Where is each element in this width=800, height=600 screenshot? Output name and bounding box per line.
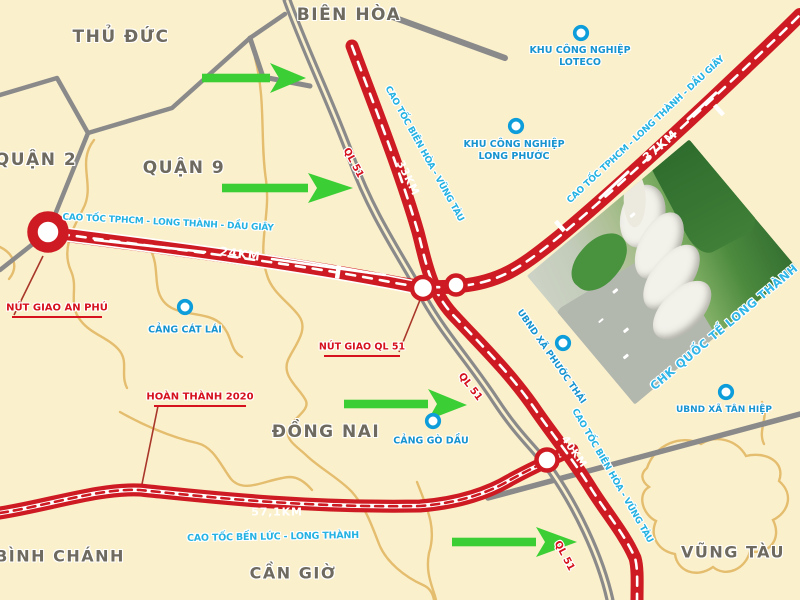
region-label-thu-duc: THỦ ĐỨC [73, 27, 170, 47]
route-map: THỦ ĐỨC BIÊN HÒA QUẬN 2 QUẬN 9 ĐỒNG NAI … [0, 0, 800, 600]
poi-marker-icon [720, 386, 733, 399]
green-arrow-icon [344, 389, 467, 420]
ql51-junction-circle [412, 277, 434, 299]
region-label-vung-tau: VŨNG TÀU [681, 543, 785, 562]
region-label-bien-hoa: BIÊN HÒA [297, 5, 401, 25]
poi-marker-icon [179, 301, 192, 314]
junction-label-ql51: NÚT GIAO QL 51 [319, 342, 405, 353]
poi-label-kcn-long-phuoc: KHU CÔNG NGHIỆP LONG PHƯỚC [463, 139, 564, 163]
expressway-tphcm-long-thanh-dau-giay [60, 15, 800, 287]
poi-marker-icon [427, 415, 440, 428]
bien-hoa-road [390, 16, 505, 58]
label-underline [12, 316, 102, 318]
bridge-tick [713, 104, 725, 117]
poi-label-ubnd-tan-hiep: UBND XÃ TÂN HIỆP [676, 405, 772, 415]
poi-label-line: LONG PHƯỚC [463, 151, 564, 163]
poi-label-cang-cat-lai: CẢNG CÁT LÁI [148, 325, 222, 336]
expressway-center-dashes [0, 450, 572, 513]
junction-circle [537, 450, 558, 471]
poi-label-kcn-loteco: KHU CÔNG NGHIỆP LOTECO [529, 45, 630, 69]
label-underline [324, 355, 400, 357]
region-label-quan-2: QUẬN 2 [0, 150, 77, 170]
note-label-hoan-thanh-2020: HOÀN THÀNH 2020 [146, 392, 253, 403]
junction-label-an-phu: NÚT GIAO AN PHÚ [6, 303, 108, 314]
expressway-bien-hoa-vung-tau [352, 46, 637, 600]
poi-marker-icon [557, 337, 570, 350]
poi-label-cang-go-dau: CẢNG GÒ DẦU [393, 436, 469, 447]
ql51-junction-circle [447, 276, 466, 295]
region-label-dong-nai: ĐỒNG NAI [272, 422, 381, 442]
poi-label-line: KHU CÔNG NGHIỆP [463, 139, 564, 151]
poi-label-line: KHU CÔNG NGHIỆP [529, 45, 630, 57]
poi-marker-icon [510, 120, 523, 133]
callout-line [141, 406, 158, 489]
poi-label-line: LOTECO [529, 57, 630, 69]
region-label-quan-9: QUẬN 9 [143, 158, 225, 178]
distance-label-571km: 57,1KM [251, 506, 302, 519]
region-label-can-gio: CẦN GIỜ [250, 564, 337, 583]
poi-marker-icon [575, 27, 588, 40]
label-underline [154, 405, 246, 407]
region-label-binh-chanh: BÌNH CHÁNH [0, 547, 125, 566]
green-arrow-icon [222, 173, 353, 203]
an-phu-roundabout [33, 217, 64, 248]
expressway-dashes [352, 46, 637, 600]
